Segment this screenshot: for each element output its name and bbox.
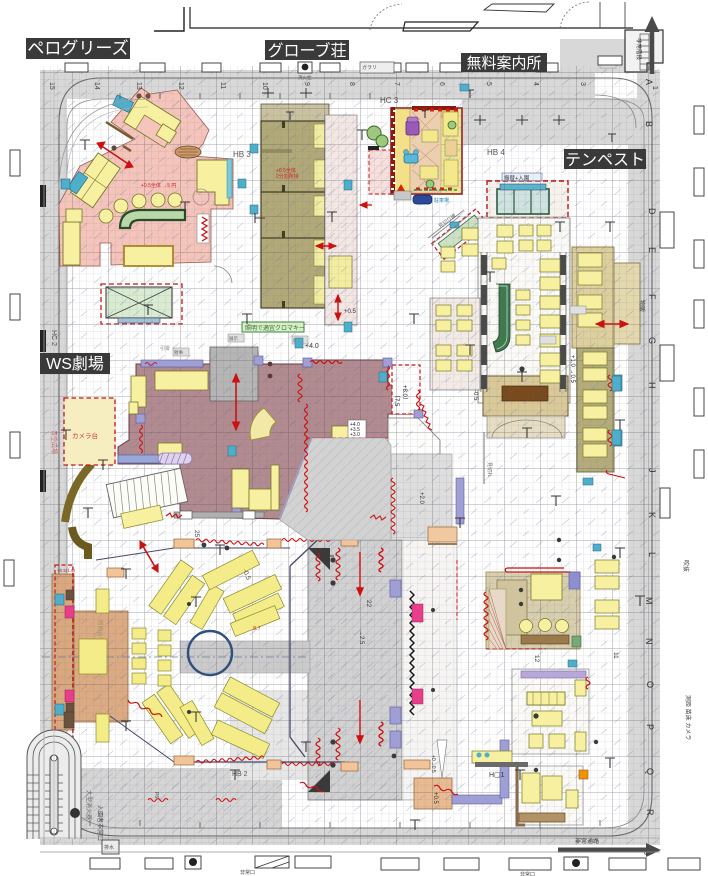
svg-text:催事: 催事: [174, 349, 183, 356]
svg-text:ガラリ: ガラリ: [362, 64, 377, 71]
svg-text:測距 苗床 カメラ: 測距 苗床 カメラ: [684, 695, 692, 740]
svg-text:照明台: 照明台: [96, 620, 104, 637]
svg-text:Q: Q: [645, 768, 655, 775]
svg-text:+0.5全体 →5 円: +0.5全体 →5 円: [141, 182, 176, 189]
svg-text:HB 2: HB 2: [232, 771, 248, 778]
svg-text:+0.5: +0.5: [432, 792, 438, 805]
svg-text:8: 8: [348, 82, 355, 86]
svg-text:7: 7: [393, 82, 400, 86]
svg-text:大型消火器: 大型消火器: [85, 790, 93, 820]
svg-text:11: 11: [612, 652, 619, 659]
svg-text:5: 5: [485, 82, 492, 86]
svg-text:+0.5: +0.5: [344, 309, 357, 315]
svg-text:K: K: [647, 512, 657, 518]
svg-text:10: 10: [261, 82, 268, 90]
svg-text:H▢1: H▢1: [489, 772, 505, 779]
svg-text:排水: 排水: [104, 844, 114, 851]
svg-text:非常口: 非常口: [520, 871, 535, 876]
svg-text:無料案内所: 無料案内所: [466, 54, 541, 72]
svg-text:11: 11: [219, 82, 226, 89]
svg-text:WS劇場: WS劇場: [46, 355, 104, 373]
svg-text:物販: 物販: [638, 300, 646, 312]
svg-text:R: R: [645, 809, 655, 816]
svg-text:+1.0 →0.5: +1.0 →0.5: [569, 355, 575, 384]
svg-text:テンペスト: テンペスト: [565, 152, 645, 169]
svg-text:見切れ: 見切れ: [486, 462, 493, 477]
svg-text:引掛: 引掛: [160, 345, 170, 352]
svg-text:8.7: 8.7: [253, 626, 261, 632]
svg-text:+8.0〕: +8.0〕: [401, 385, 408, 403]
svg-text:吹抜: 吹抜: [682, 560, 690, 572]
svg-text:+0→0.5: +0→0.5: [430, 755, 436, 773]
svg-text:-0.5: -0.5: [472, 390, 478, 401]
svg-text:HB 4: HB 4: [487, 148, 505, 157]
svg-text:M: M: [644, 597, 654, 605]
svg-text:13: 13: [135, 82, 142, 90]
svg-text:→2.5: →2.5: [358, 630, 364, 645]
svg-text:グローブ荘: グローブ荘: [267, 41, 346, 60]
svg-text:D: D: [647, 208, 657, 215]
svg-text:カメラ台: カメラ台: [72, 431, 98, 440]
svg-text:+3.0: +3.0: [350, 432, 360, 438]
svg-text:P6: P6: [153, 792, 159, 798]
svg-text:入園者非常口: 入園者非常口: [96, 805, 104, 841]
svg-text:12: 12: [533, 655, 540, 663]
svg-text:L: L: [647, 552, 657, 557]
svg-text:E: E: [647, 247, 657, 253]
svg-text:12: 12: [177, 82, 184, 90]
svg-text:F: F: [647, 294, 657, 300]
svg-text:6: 6: [438, 82, 445, 86]
svg-text:N: N: [644, 638, 654, 645]
svg-text:非常口: 非常口: [240, 869, 255, 876]
svg-text:+2.0: +2.0: [418, 492, 424, 505]
svg-text:消火栓: 消火栓: [298, 74, 312, 81]
svg-text:P: P: [645, 724, 655, 730]
svg-text:+0.5全体: +0.5全体: [276, 167, 296, 174]
svg-text:照明で適宜クロマキー: 照明で適宜クロマキー: [245, 324, 305, 332]
svg-text:〔7.5: 〔7.5: [393, 392, 400, 407]
svg-text:非常階段: 非常階段: [635, 38, 643, 61]
svg-text:14: 14: [93, 82, 100, 90]
svg-text:HB 3: HB 3: [233, 150, 251, 159]
svg-text:25: 25: [193, 530, 200, 538]
svg-text:HC 3: HC 3: [380, 96, 399, 105]
svg-text:ペログリーズ: ペログリーズ: [27, 39, 128, 58]
svg-text:駐車場: 駐車場: [434, 197, 449, 204]
svg-text:J: J: [647, 468, 657, 473]
svg-text:1: 1: [651, 86, 658, 90]
svg-text:22: 22: [365, 600, 372, 608]
svg-text:A: A: [644, 79, 654, 85]
svg-text:4: 4: [532, 82, 539, 86]
svg-text:H: H: [647, 382, 657, 389]
svg-text:3: 3: [579, 82, 586, 86]
svg-text:2分割所持: 2分割所持: [276, 173, 299, 180]
svg-text:G: G: [647, 337, 657, 344]
svg-text:9: 9: [303, 82, 310, 86]
svg-text:O: O: [645, 681, 655, 688]
svg-text:+0.5(1.0): +0.5(1.0): [57, 568, 76, 573]
svg-text:B: B: [644, 121, 654, 127]
svg-text:HC 2: HC 2: [50, 330, 57, 346]
